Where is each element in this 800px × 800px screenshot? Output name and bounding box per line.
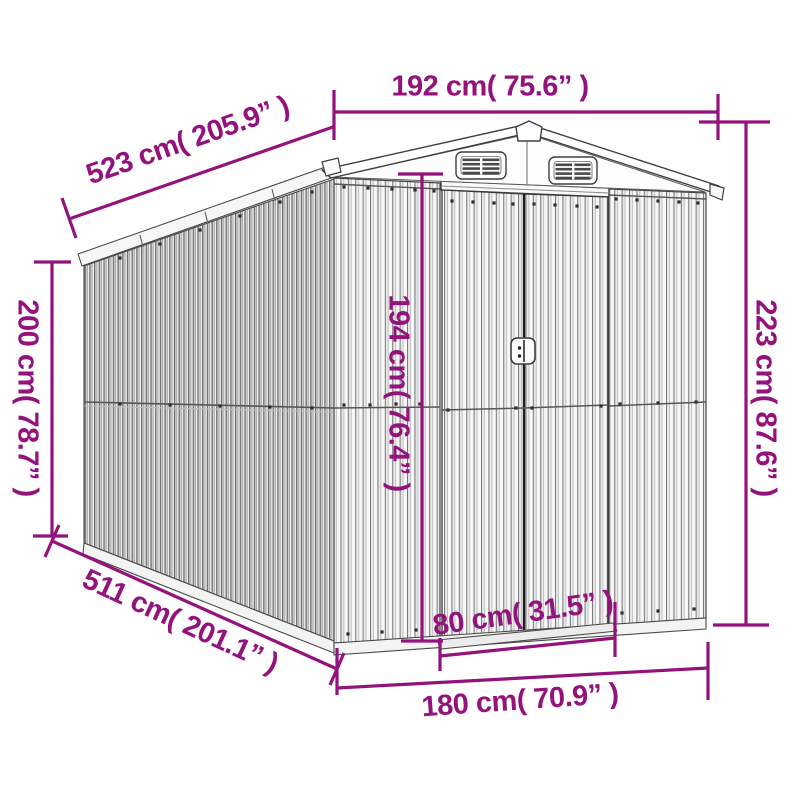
roof-apex-finial (516, 121, 542, 141)
dim-label-total-height: 223 cm( 87.6” ) (749, 299, 782, 496)
dim-label-wall-height: 200 cm( 78.7” ) (11, 299, 44, 496)
sliding-doors (442, 190, 608, 641)
door-right-panel (524, 194, 608, 634)
gable-vent-left (456, 152, 506, 179)
dim-label-front-width: 192 cm( 75.6” ) (391, 71, 588, 104)
door-left-panel (442, 190, 524, 641)
dimension-diagram: 192 cm( 75.6” ) 523 cm( 205.9” ) 223 cm(… (0, 0, 800, 800)
dim-label-door-height: 194 cm( 76.4” ) (382, 294, 415, 491)
door-handle (511, 338, 535, 364)
roof-left-eave-cap (322, 158, 341, 176)
roof-right-eave-cap (710, 184, 724, 200)
gable-vent-right (549, 157, 597, 184)
front-wall-right (609, 189, 706, 625)
